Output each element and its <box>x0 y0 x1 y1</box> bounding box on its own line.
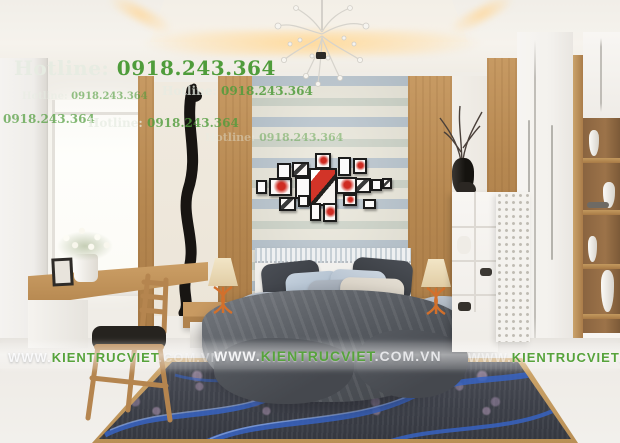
cubby-divider <box>474 192 476 312</box>
hotline-number: 0918.243.364 <box>259 131 343 144</box>
right-lamp-wire-base <box>424 287 448 315</box>
wardrobe-seam <box>534 40 536 355</box>
website-www: WWW. <box>214 348 261 364</box>
website-name: KIENTRUCVIET <box>52 350 159 365</box>
watermark-hotline-mid: Hotline: 0918.243.364 <box>162 84 313 98</box>
picture-frame <box>310 203 321 221</box>
website-www: WWW. <box>8 350 52 365</box>
picture-frame <box>336 177 357 194</box>
watermark-website-right: WWW.KIENTRUCVIET.COM.VN <box>468 350 620 365</box>
left-lamp-wire-base <box>211 286 235 314</box>
website-name: KIENTRUCVIET <box>261 348 375 364</box>
hotline-number: 0918.243.364 <box>117 56 276 80</box>
picture-frame <box>355 178 371 193</box>
hotline-number: 0918.243.364 <box>71 91 148 102</box>
hotline-label: Hotline: <box>162 84 217 98</box>
website-name: KIENTRUCVIET <box>512 350 619 365</box>
hotline-label: Hotline: <box>22 91 68 102</box>
gallery-wall <box>252 148 408 230</box>
watermark-hotline-row3: Hotline: 0918.243.364 <box>88 116 239 130</box>
perforated-panel <box>496 192 530 342</box>
website-tld: .COM.VN <box>375 348 442 364</box>
hotline-label: Hotline: <box>88 116 143 130</box>
hotline-label: Hotline: <box>14 56 109 80</box>
picture-frame <box>298 195 309 207</box>
picture-frame <box>371 179 382 191</box>
watermark-hotline-left-partial: Hotline: 0918.243.364 <box>0 112 95 126</box>
picture-frame <box>269 178 292 196</box>
white-vase <box>589 130 599 156</box>
bedroom-interior-render: Hotline: 0918.243.364 Hotline: 0918.243.… <box>0 0 620 443</box>
shelf-item-dark <box>457 236 471 254</box>
picture-frame <box>323 203 337 222</box>
watermark-website-left: WWW.KIENTRUCVIET.COM.VN <box>8 350 221 365</box>
top-cabinet-seam <box>600 38 602 112</box>
wardrobe-handle <box>551 125 553 260</box>
website-www: WWW. <box>468 350 512 365</box>
website-tld: .COM.VN <box>158 350 221 365</box>
picture-frame <box>315 153 331 169</box>
watermark-website-center: WWW.KIENTRUCVIET.COM.VN <box>214 348 442 364</box>
hotline-number: 0918.243.364 <box>3 112 95 126</box>
watermark-hotline-large: Hotline: 0918.243.364 <box>14 56 276 80</box>
picture-frame-large <box>309 168 337 206</box>
shelf-board <box>583 264 620 269</box>
picture-frame <box>279 197 296 211</box>
shelf-board <box>583 314 620 319</box>
picture-frame <box>256 180 267 194</box>
white-vase <box>601 270 614 312</box>
picture-frame <box>353 158 367 174</box>
watermark-hotline-faint: Hotline: 0918.243.364 <box>205 131 343 144</box>
gray-plate <box>587 202 609 208</box>
picture-frame <box>382 178 392 189</box>
shelf-item-dark <box>480 268 492 276</box>
hotline-label: Hotline: <box>205 131 255 144</box>
flower-bouquet <box>54 222 116 262</box>
shelf-board <box>583 158 620 163</box>
shelf-item-dark <box>458 302 471 311</box>
chandelier <box>266 0 376 90</box>
picture-frame <box>363 199 376 209</box>
hotline-number: 0918.243.364 <box>147 116 239 130</box>
watermark-hotline-small: Hotline: 0918.243.364 <box>22 91 148 102</box>
white-vase <box>588 236 597 262</box>
shelf-board <box>583 210 620 215</box>
open-shelves <box>583 118 620 333</box>
hotline-number: 0918.243.364 <box>221 84 313 98</box>
picture-frame <box>292 162 309 177</box>
picture-frame <box>277 163 291 179</box>
low-shelf-unit <box>452 192 498 352</box>
picture-frame <box>338 157 351 176</box>
picture-frame <box>343 194 357 206</box>
photo-frame-inner <box>54 261 70 284</box>
dark-shoes-on-shelf <box>458 182 476 192</box>
